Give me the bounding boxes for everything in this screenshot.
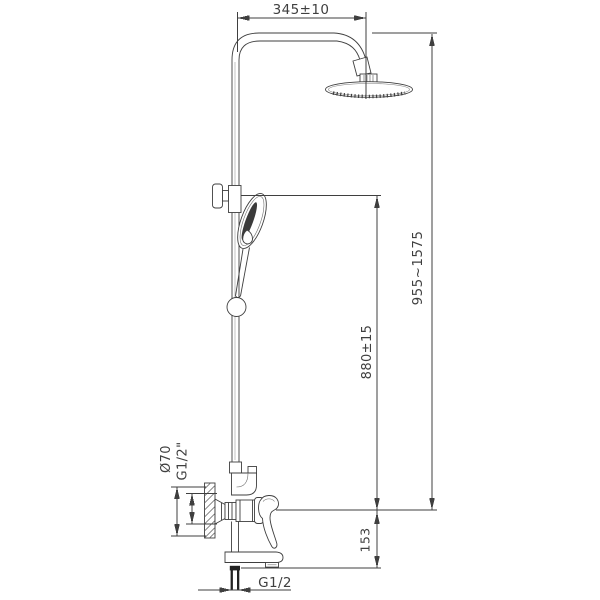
label-escutcheon-diameter: Ø70 — [159, 445, 174, 473]
spout-supply-pipe — [232, 522, 239, 553]
hose-elbow-fitting — [230, 462, 257, 495]
supply-stub-pipe — [230, 566, 240, 590]
shower-column-assembly — [205, 33, 413, 590]
label-inlet-thread: G1/2" — [176, 442, 191, 481]
label-bracket-height: 880±15 — [360, 325, 375, 380]
slider-ring — [227, 298, 246, 317]
shower-set-dimension-drawing: 345±10 955~1575 880±15 153 Ø70 G1/2" G1/… — [0, 0, 600, 600]
technical-drawing-canvas: 345±10 955~1575 880±15 153 Ø70 G1/2" G1/… — [0, 0, 600, 600]
dim-escutcheon-diameter — [171, 487, 206, 536]
label-spout-drop: 153 — [358, 527, 373, 552]
tub-spout — [225, 552, 283, 567]
mixer-valve — [215, 498, 264, 525]
riser-pipe — [232, 33, 366, 462]
wall-bracket — [213, 184, 242, 213]
label-top-width: 345±10 — [273, 2, 330, 18]
dim-overall-height — [372, 33, 437, 510]
wall-section — [205, 483, 216, 538]
label-overall-height: 955~1575 — [410, 231, 426, 306]
rain-shower-head — [326, 57, 413, 97]
label-outlet-thread: G1/2 — [258, 575, 292, 591]
